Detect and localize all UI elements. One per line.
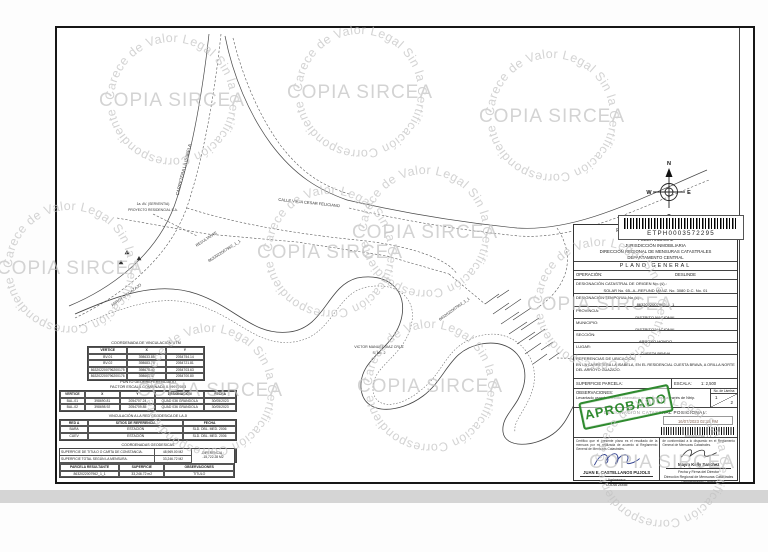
scan-bottom-shadow [0, 490, 768, 503]
signature-rule [666, 468, 731, 469]
referencias-label: REFERENCIAS DE UBICACIÓN: [576, 356, 735, 361]
signature-rule [580, 476, 653, 477]
municipio-row: MUNICIPIO: DISTRITO NACIONAL [574, 318, 737, 330]
director-signature [675, 447, 723, 460]
map-label: CALLE VIEJA CESAR FELICIANO [278, 197, 340, 208]
map-label: 1a. AV. (SERVENTIA) [137, 202, 170, 206]
table-cell: SUPERFICIE [119, 464, 164, 471]
table-cell: 2054703.63 [166, 367, 204, 374]
georef-title-2: FACTOR ESCALA COMBINADA 0.99972003 [59, 385, 237, 389]
lamina-number-2: 2 [730, 400, 733, 406]
table-cell: 30/05/2023 [204, 398, 236, 405]
table-cell: 8632022007962_1_1 [60, 471, 119, 478]
scanned-cadastral-plan-page: { "watermark": { "ring_text": "Carece de… [0, 0, 768, 503]
lugar-label: LUGAR: [576, 344, 735, 349]
georef-title-1: PUNTO GEORREFERENCIADO [59, 380, 237, 384]
parcela-resultante-table: PARCELA RESULTANTESUPERFICIEOBSERVACIONE… [60, 463, 234, 477]
table-cell: X [127, 347, 165, 354]
operacion-value: DESLINDE [634, 272, 737, 277]
municipio-label: MUNICIPIO: [576, 320, 735, 325]
utm-table-wrap: COORDENADA DE VINCULACIÓN UTM VERTICEXYB… [87, 341, 205, 381]
table-cell: BAL-01 [60, 398, 85, 405]
compass-n: N [667, 161, 671, 167]
compass-e: E [687, 190, 691, 196]
table-cell: 2054709.85 [120, 404, 155, 411]
table-cell: FECHA [204, 391, 236, 398]
table-cell: 398633.85 [127, 354, 165, 361]
lugar-row: LUGAR: CUESTA BRAVA [574, 342, 737, 354]
table-cell: 2054721.81 [166, 360, 204, 367]
utm-table: VERTICEXYBV-01398633.852054754.14BV-0239… [87, 346, 205, 381]
table-cell: BV-02 [88, 360, 127, 367]
georef-table: VERTICEXYDESIGNACIÓNFECHABAL-01398690.81… [59, 390, 237, 412]
surveyor-cert-text: Certifico que el presente plano es el re… [576, 439, 657, 451]
mensura-area-label: SUPERFICIE TOTAL SEGÚN LA MENSURA. [60, 456, 154, 462]
table-cell: 398661.47 [127, 373, 165, 380]
table-cell: 2054754.14 [166, 354, 204, 361]
table-cell: 2054707.24 [120, 398, 155, 405]
vinculacion-vertex-marks [119, 250, 142, 264]
escala-label: ESCALA: [671, 379, 701, 388]
table-cell: 398675.40 [127, 367, 165, 374]
diferencia-value: -15,722.28 M2 [192, 455, 234, 459]
table-cell: BAL-02 [60, 404, 85, 411]
temporal-row: DESIGNACIÓN TEMPORAL No (s).: 8632022007… [574, 293, 737, 306]
table-cell: 863202200796200175 [88, 367, 127, 374]
compass-rose: N S W E [645, 154, 693, 224]
origen-label: DESIGNACIÓN CATASTRAL DE ORIGEN No. (s).… [576, 281, 735, 286]
map-label: 8632022007962_1_1 [438, 296, 471, 322]
table-cell: 30/05/2023 [204, 404, 236, 411]
table-cell: VERTICE [60, 391, 85, 398]
map-label: PROYECTO RESIDENCIAL S.A. [128, 208, 178, 212]
table-cell: SITIOS DE REFERENCIA [88, 420, 183, 427]
operacion-label: OPERACIÓN: [574, 272, 634, 277]
areas-summary-table: SUPERFICIE DE TITULO O CARTA DE CONSTANC… [59, 448, 235, 478]
titulo-area-row: SUPERFICIE DE TITULO O CARTA DE CONSTANC… [60, 449, 191, 456]
surveyor-name: JUAN E. CASTELLANOS PUJOLS [576, 470, 657, 475]
director-line3: Departamento Central [662, 480, 735, 485]
table-cell: Y [120, 391, 155, 398]
lamina-cell: No. de Lámina 1 2 [710, 389, 737, 407]
provincia-row: PROVINCIA: DISTRITO NACIONAL [574, 306, 737, 318]
table-cell: OBSERVACIONES [164, 464, 234, 471]
table-cell: DESIGNACIÓN [155, 391, 204, 398]
mensura-area-value: 33,246.72 M2 [154, 456, 191, 462]
table-cell: PARCELA RESULTANTE [60, 464, 119, 471]
table-cell: CUEV [60, 433, 88, 440]
approval-date: 16/07/2023 02:18 PM [663, 416, 733, 425]
table-cell: 33,246.72 m2 [119, 471, 164, 478]
temporal-label: DESIGNACIÓN TEMPORAL No (s).: [576, 295, 735, 300]
diferencia-cell: DIFERENCIA : -15,722.28 M2 [191, 449, 234, 463]
table-cell: FECHA [183, 420, 236, 427]
lamina-number-1: 1 [715, 395, 718, 401]
escala-value: 1: 2,500 [701, 379, 737, 388]
referencia-table: RED ASITIOS DE REFERENCIAFECHABARAESTACI… [59, 419, 237, 441]
utm-table-title: COORDENADA DE VINCULACIÓN UTM [87, 341, 205, 345]
north-arrow [666, 168, 673, 177]
vinculacion-band: VINCULACIÓN A LA RED GEODESICA DE LA JI [59, 414, 237, 418]
table-cell: ESTACIÓN [88, 426, 183, 433]
director-cert-text: de conformidad a lo dispuesto en el Regl… [662, 439, 735, 447]
table-cell: Y [166, 347, 204, 354]
table-cell: BV-01 [88, 354, 127, 361]
surveyor-codia: CODIA 24455 [576, 483, 657, 488]
plan-sheet: CARRETERA LA ISABELACALLE VIEJA CESAR FE… [55, 26, 755, 484]
mensura-area-row: SUPERFICIE TOTAL SEGÚN LA MENSURA. 33,24… [60, 456, 191, 463]
table-cell: BARA [60, 426, 88, 433]
origen-value: SOLAR No. 65--A--REFUND MANZ. No. 3080 D… [576, 288, 735, 293]
table-cell: 398683.74 [127, 360, 165, 367]
map-label: RESULTANTE [195, 231, 218, 248]
title-block: REPÚBLICA DOMINICANA PODER JUDICIAL JURI… [573, 224, 738, 481]
map-label: VICTOR MANUEL DIAZ CRUZ [354, 345, 404, 349]
seccion-row: SECCIÓN: ARROYO HONDO [574, 330, 737, 342]
table-cell: ESTACIÓN [88, 433, 183, 440]
table-cell: QUAD 036 GRANDOLA [155, 398, 204, 405]
table-cell: SLD. DBL. MED. 2006 [183, 433, 236, 440]
table-cell: TITULO [164, 471, 234, 478]
table-cell: SLD. DBL. MED. 2006 [183, 426, 236, 433]
table-cell: 863202200796200176 [88, 373, 127, 380]
document-barcode: ETPH0003572295 [618, 215, 744, 240]
sheet-right-margin-line [739, 28, 740, 482]
map-label: 8632022007962_1_1 [207, 238, 242, 263]
compass-w: W [646, 190, 652, 196]
referencias-value: EN LA CARRETERA LA ISABELA, EN EL RESIDE… [576, 363, 735, 373]
origen-row: DESIGNACIÓN CATASTRAL DE ORIGEN No. (s).… [574, 279, 737, 293]
signature-section: Certifico que el presente plano es el re… [574, 437, 737, 480]
referencias-row: REFERENCIAS DE UBICACIÓN: EN LA CARRETER… [574, 354, 737, 378]
titulo-area-value: 48,969.00 M2 [154, 449, 191, 455]
provincia-label: PROVINCIA: [576, 308, 735, 313]
surveyor-signature [588, 451, 646, 468]
map-label: S. No. 2 [373, 351, 386, 355]
plano-general-title: PLANO GENERAL [574, 261, 737, 270]
geodesicas-band: COORDENADAS GEODESICAS [59, 443, 237, 447]
surveyor-signature-block: Certifico que el presente plano es el re… [574, 438, 660, 480]
table-cell: RED A [60, 420, 88, 427]
seccion-label: SECCIÓN: [576, 332, 735, 337]
director-name: Mayra Kelly Sanchez [662, 462, 735, 467]
barcode-bars [624, 218, 738, 229]
titulo-area-label: SUPERFICIE DE TITULO O CARTA DE CONSTANC… [60, 449, 154, 455]
table-cell: QUAD 036 GRANDOLA [155, 404, 204, 411]
table-cell: VERTICE [88, 347, 127, 354]
operacion-row: OPERACIÓN: DESLINDE [574, 270, 737, 279]
map-label: CARRETERA LA ISABELA [175, 143, 193, 195]
director-signature-block: de conformidad a lo dispuesto en el Regl… [660, 438, 737, 480]
barcode-number: ETPH0003572295 [619, 230, 743, 237]
table-cell: 398690.81 [85, 398, 120, 405]
table-cell: 398698.92 [85, 404, 120, 411]
table-cell: X [85, 391, 120, 398]
table-cell: 2054700.80 [166, 373, 204, 380]
